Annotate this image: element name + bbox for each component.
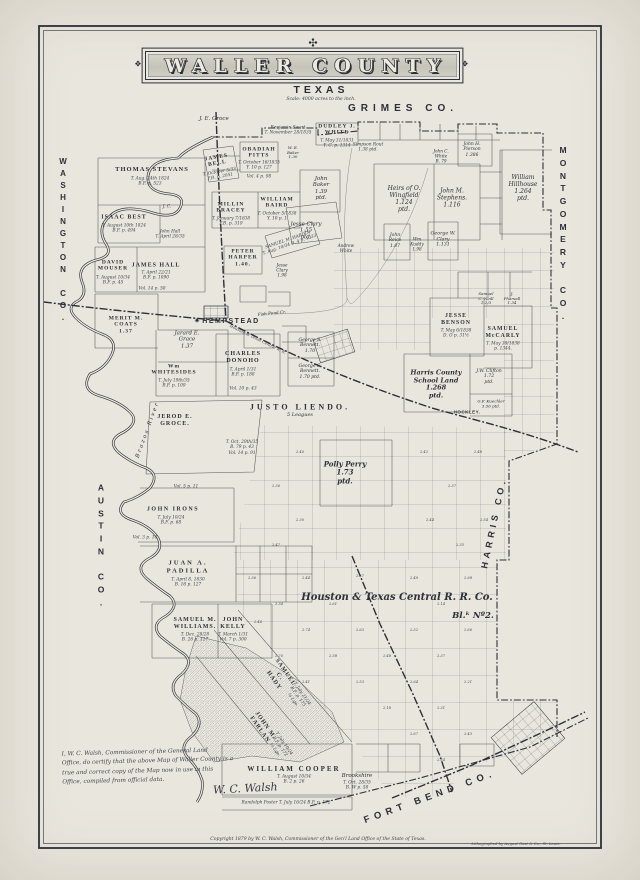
section-number: 2.43	[464, 732, 472, 736]
section-number: 2.70	[275, 654, 283, 658]
map-label: John Baker 1.39 ptd.	[313, 176, 330, 202]
section-number: 2.41	[302, 680, 310, 684]
map-label: Wm WHITESIDES	[151, 364, 196, 377]
banner-left-ornament-icon: ❖	[134, 60, 141, 69]
section-number: 2.53	[356, 680, 364, 684]
copyright-line: Copyright 1879 by W. C. Walsh, Commissio…	[210, 837, 425, 842]
section-number: 2.36	[272, 484, 280, 488]
section-number: 2.48	[383, 654, 391, 658]
map-label: T. Oct. 28/35 B. W p. 58	[343, 781, 371, 792]
map-label: T. May 6/1838 D. O p. 31½	[441, 329, 472, 340]
map-label: J. C.	[163, 204, 172, 209]
section-number: 2.44	[426, 518, 434, 522]
map-scale-note: Scale: 4000 acres to the inch.	[286, 97, 355, 102]
title-banner: WALLER COUNTY	[145, 51, 460, 80]
map-label: JOHN KELLY	[220, 617, 245, 631]
lithographer-line: Lithographed by August Gast & Co., St. L…	[471, 841, 560, 846]
map-label: W. E. Baker 1.30	[287, 146, 299, 160]
section-number: 2.49	[410, 576, 418, 580]
county-washington: W A S H I N G T O N C O .	[59, 156, 67, 324]
map-label: Harris County School Land 1.268 ptd.	[410, 370, 461, 401]
section-number: 2.30	[296, 518, 304, 522]
map-label: Vol. 4 p. 98	[247, 174, 271, 179]
map-label: Andrew White	[338, 244, 354, 254]
town-brookshire: Brookshire	[342, 773, 373, 779]
map-label: OBADIAH PITTS	[242, 147, 275, 160]
section-number: 2.52	[410, 628, 418, 632]
map-label: Vol. 14 p. 58	[138, 286, 165, 291]
map-label: William Hillhouse 1.264 ptd.	[509, 174, 538, 202]
section-number: 2.40	[296, 450, 304, 454]
map-label: Jesse Clary 1.98	[276, 264, 287, 279]
map-label: DUDLEY J. WHITE	[318, 124, 356, 137]
section-number: 2.54	[437, 758, 445, 762]
county-austin: A U S T I N C O .	[98, 481, 105, 609]
map-label: J.W. Clifton 1.72 ptd.	[476, 369, 502, 385]
section-number: 2.57	[356, 574, 364, 578]
hempstead-town-grid	[204, 306, 228, 318]
map-label: Heirs of O. Wingfield 1.124 ptd.	[388, 185, 421, 213]
section-number: 2.42	[420, 450, 428, 454]
map-label: JUAN A. PADILLA	[167, 559, 210, 574]
map-label: T. May 30/1838 p. 1344.	[486, 342, 520, 353]
map-label: George S. Bennett. 1.70 ptd.	[299, 364, 322, 380]
section-number: 2.47	[272, 543, 280, 547]
map-label: WILLIAM BAIRD	[260, 197, 293, 210]
map-label: THOMAS STEVANS	[115, 166, 189, 174]
section-number: 2.35	[456, 543, 464, 547]
courthouse-star: ✷	[194, 318, 199, 325]
map-label: T. April 22/21 B.F. p. 1090	[141, 271, 170, 282]
map-label: Vol. 3 p. 14	[133, 535, 157, 540]
map-label: MILLIN BRACEY	[216, 202, 245, 215]
section-number: 2.68	[464, 576, 472, 580]
map-label: Benjamin Swart T. November 28/1835	[265, 126, 312, 137]
map-label: T. Aug. 24th 1824 B.F. p. 523	[131, 177, 170, 188]
map-label: MERIT M. COATS 1.37	[109, 315, 143, 334]
map-label: T. May 31/1831 Y. C. p. 1314	[320, 139, 354, 150]
map-label: CHARLES DONOHO	[225, 351, 261, 365]
map-label: John C. White B. 79	[433, 150, 448, 165]
section-number: 2.56	[248, 576, 256, 580]
map-label: T. January 7/1838 F.B. p. 319	[212, 217, 250, 228]
map-label: George W. Clary 1.131	[431, 232, 456, 249]
map-label: J. Pharsall 1.34	[504, 292, 521, 306]
county-montgomery: M O N T G O M E R Y C O .	[559, 144, 566, 323]
map-label: Wm Kuddy 1.98	[410, 238, 423, 253]
map-label: JOHN IRONS	[147, 506, 199, 513]
map-label: PETER HARPER 1.40.	[228, 248, 257, 267]
map-label: JEROD E. GROCE.	[157, 414, 192, 428]
county-grimes: GRIMES CO.	[348, 103, 458, 115]
map-label: George S. Bennett. 1.70	[299, 338, 322, 354]
section-number: 2.44	[302, 576, 310, 580]
map-label: T. April 1/31 B.F. p. 188	[230, 368, 257, 379]
map-label: John M. Stephens. 1.116	[437, 187, 467, 208]
section-number: 2.14	[437, 602, 445, 606]
map-label: Jarard E. Grace 1.37	[174, 330, 199, 349]
section-number: 2.48	[474, 450, 482, 454]
section-number: 2.31	[437, 706, 445, 710]
map-label: T. March 1/31 Vol. 7 p. 300	[218, 633, 248, 644]
section-number: 2.66	[464, 628, 472, 632]
map-label: T. Dec. 28/28 B. 26 p. 117	[181, 633, 209, 644]
top-ornament-icon: ✣	[308, 37, 317, 50]
section-number: 2.61	[329, 602, 337, 606]
section-number: 2.37	[437, 654, 445, 658]
map-label: T. August 10/34 B. 2 p. 26	[277, 775, 311, 786]
town-hockley: HOCKLEY.	[454, 409, 481, 414]
map-label: Polly Perry 1.73 ptd.	[324, 461, 367, 486]
map-label: T. April 8, 1830 B. 16 p. 127	[171, 578, 204, 589]
map-label: T. July 19th/35 B.F. p. 109	[158, 379, 190, 390]
section-number: 2.18	[383, 706, 391, 710]
section-number: 2.63	[356, 628, 364, 632]
section-number: 2.67	[410, 732, 418, 736]
map-label: Randolph Foster T. July 16/24 B.F. p. 17…	[241, 800, 330, 805]
map-label: 5 Leagues	[287, 413, 313, 419]
map-label: WILLIAM COOPER	[247, 765, 340, 773]
map-label: T. August 10/34 B.F. p. 45	[96, 276, 130, 287]
map-label: T. October 16/1835 Y. 10 p. 127	[238, 161, 280, 172]
map-label: John H. Pierson 1.386	[463, 142, 480, 158]
section-number: 2.64	[410, 680, 418, 684]
map-label: John Hall T. April 28/35	[155, 230, 184, 241]
map-label: Vol. 5 p. 11	[174, 484, 198, 489]
map-label: ISAAC BEST	[101, 214, 147, 221]
map-subtitle-state: TEXAS	[293, 84, 348, 96]
map-label: JAMES HALL	[132, 262, 181, 269]
map-label: SAMUEL McCARLY	[485, 326, 520, 340]
map-label: JESSE BENSON	[441, 313, 471, 327]
map-label: G.F. Kuechler 3.56 ptd.	[477, 399, 504, 408]
map-label: Bl.ᵏ Nº2.	[452, 611, 494, 621]
map-label: DAVID MOUSER	[98, 260, 128, 273]
banner-right-ornament-icon: ❖	[461, 60, 468, 69]
section-number: 2.74	[302, 628, 310, 632]
map-label: T. August 10th 1824 B.F. p. 494	[102, 224, 146, 235]
map-label: Simpson Rout 1.38 ptd.	[353, 143, 383, 154]
map-label: T. July 10/24 B.F. p. 68	[157, 516, 184, 527]
certificate: I, W. C. Walsh, Commissioner of the Gene…	[62, 745, 255, 787]
map-page: ✣ ❖ ❖ WALLER COUNTY TEXAS Scale: 4000 ac…	[0, 0, 640, 880]
section-number: 2.58	[329, 654, 337, 658]
section-number: 2.46	[254, 620, 262, 624]
section-number: 2.37	[448, 484, 456, 488]
map-label: J. E. Groce	[199, 116, 228, 122]
section-number: 2.54	[480, 518, 488, 522]
map-label: Samuel C. Neill 1.2/3	[478, 292, 493, 306]
section-number: 2.34	[275, 602, 283, 606]
map-label: John Reice 1.87	[389, 233, 402, 249]
map-label: T. Oct. 29th/35 B. 79 p. 43 Vol. 14 p. 9…	[226, 440, 258, 456]
map-label: JUSTO LIENDO.	[250, 402, 350, 411]
section-number: 2.21	[464, 680, 472, 684]
map-label: Vol. 10 p. 43	[229, 386, 256, 391]
map-title: WALLER COUNTY	[158, 55, 448, 77]
map-label: SAMUEL M. WILLIAMS.	[173, 617, 216, 631]
